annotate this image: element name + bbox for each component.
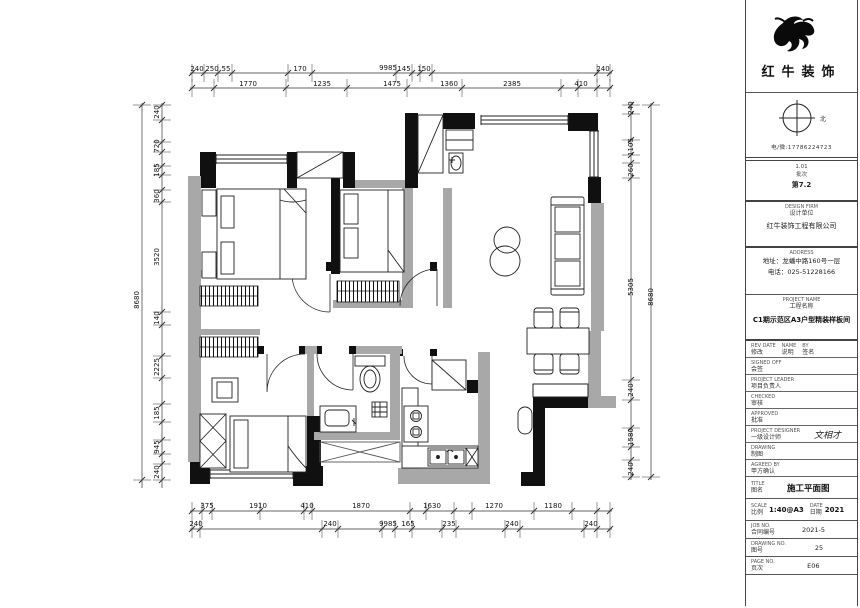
sign-label-cn: 甲方确认 (751, 468, 803, 475)
sign-label-cn: 会签 (751, 366, 803, 373)
sign-row: AGREED BY甲方确认 (746, 460, 857, 477)
drawing-number: 25 (786, 544, 852, 552)
job-label-cn: 合同编号 (751, 529, 775, 536)
bed-master (202, 189, 306, 279)
dim-label: 165 (401, 520, 414, 528)
by-label-cn: 签名 (802, 349, 814, 356)
dim-label: 150 (417, 65, 430, 73)
dim-label: 235 (442, 520, 455, 528)
dim-label: 945 (153, 440, 161, 453)
hotline: 电/微:17786224723 (746, 143, 857, 157)
dim-label: 410 (300, 502, 313, 510)
date-label-cn: 日期 (810, 509, 823, 516)
scale-value: 1:40@A3 (769, 506, 804, 514)
dim-label: 240 (189, 520, 202, 528)
contact-block: ADDRESS 地址：龙蟠中路160号一层 电话：025-51228166 (746, 248, 857, 294)
dim-label: 1580 (627, 428, 635, 446)
dim-label: 2225 (153, 358, 161, 376)
dim-label: 1770 (239, 80, 257, 88)
project-block: PROJECT NAME 工程名称 C1期示范区A3户型精装样板间 (746, 295, 857, 339)
dim-label: 1360 (440, 80, 458, 88)
entry-fixtures (446, 130, 473, 173)
dim-label: 8680 (647, 288, 655, 306)
dim-label: 240 (190, 65, 203, 73)
floor-plan: 9985 240 250 55 170 145 150 240 1770 123… (0, 0, 745, 608)
sign-label-en: PROJECT DESIGNER (751, 428, 803, 434)
dim-label: 1910 (249, 502, 267, 510)
name-label-cn: 说明 (782, 349, 797, 356)
dim-label: 410 (574, 80, 587, 88)
design-firm-block: DESIGN FIRM 设计单位 红牛装饰工程有限公司 (746, 202, 857, 246)
sign-label-cn: 审核 (751, 400, 803, 407)
title-block: 红牛装饰 北 电/微:17786224723 1.01 批次 第7.2 DESI… (745, 0, 858, 606)
shaft-boxes (297, 115, 443, 178)
dim-label: 240 (153, 465, 161, 478)
phone-line: 电话：025-51228166 (752, 267, 851, 278)
dim-label: 250 (205, 65, 218, 73)
dim-label: 9985 (379, 520, 397, 528)
bull-logo-icon (765, 13, 839, 59)
dim-label: 9985 (379, 64, 397, 72)
company-logo: 红牛装饰 (746, 0, 857, 92)
sign-label-cn: 制图 (751, 451, 803, 458)
drawing-number-row: DRAWING NO.图号 25 (746, 539, 857, 557)
bathroom-fixtures (320, 356, 400, 462)
north-label: 北 (820, 114, 826, 123)
revision-header-row: REV DATE修改 NAME说明 BY签名 (746, 341, 857, 358)
project-label-cn: 工程名称 (752, 303, 851, 310)
kitchen-fixtures (402, 360, 478, 468)
title-label-cn: 图名 (751, 487, 765, 494)
dim-label: 5305 (627, 278, 635, 296)
dim-label: 1870 (352, 502, 370, 510)
date-value: 2021 (825, 506, 844, 514)
sign-label-cn: 一级设计师 (751, 434, 803, 441)
drawing-title: 施工平面图 (765, 482, 852, 494)
dwg-label-cn: 图号 (751, 547, 786, 554)
firm-name: 红牛装饰工程有限公司 (752, 221, 851, 231)
wardrobes (200, 281, 399, 357)
north-arrow-icon (777, 98, 817, 138)
scale-date-row: SCALE比例 1:40@A3 DATE日期 2021 (746, 499, 857, 521)
bed-second (340, 190, 404, 272)
dim-label: 240 (153, 105, 161, 118)
drawing-title-row: TITLE图名 施工平面图 (746, 477, 857, 499)
sign-row: SIGNED OFF会签 (746, 358, 857, 375)
sign-row: PROJECT LEADER项目负责人 (746, 375, 857, 392)
project-name: C1期示范区A3户型精装样板间 (752, 315, 851, 325)
sign-row: CHECKED审核 (746, 392, 857, 409)
scale-label-cn: 比例 (751, 509, 767, 516)
sign-label-cn: 项目负责人 (751, 383, 803, 390)
job-number: 2021-5 (775, 526, 852, 534)
dim-label: 240 (627, 101, 635, 114)
dim-label: 1270 (485, 502, 503, 510)
firm-label-cn: 设计单位 (752, 210, 851, 217)
dim-label: 260 (627, 163, 635, 176)
designer-row: PROJECT DESIGNER一级设计师 文相才 (746, 426, 857, 443)
sign-label-cn: 批准 (751, 417, 803, 424)
dim-label: 140 (153, 311, 161, 324)
dim-label: 8680 (133, 291, 141, 309)
dim-label: 1235 (313, 80, 331, 88)
dim-label: 185 (153, 406, 161, 419)
sign-row: DRAWING制图 (746, 443, 857, 460)
dim-label: 240 (505, 520, 518, 528)
dim-label: 240 (627, 383, 635, 396)
dim-label: 360 (153, 189, 161, 202)
dim-label: 170 (293, 65, 306, 73)
page-number: E06 (775, 562, 852, 570)
meta-line: 批次 (746, 170, 857, 178)
brand-name: 红牛装饰 (761, 61, 841, 80)
bed-kids (200, 378, 306, 472)
dim-label: 240 (323, 520, 336, 528)
rev-label-cn: 修改 (751, 349, 776, 356)
job-number-row: JOB NO.合同编号 2021-5 (746, 521, 857, 539)
dim-label: 1475 (383, 80, 401, 88)
page-label-cn: 页次 (751, 565, 775, 572)
dim-label: 2385 (503, 80, 521, 88)
meta-block: 1.01 批次 第7.2 (746, 161, 857, 200)
sign-row: APPROVED批准 (746, 409, 857, 426)
dim-label: 185 (153, 163, 161, 176)
dim-label: 720 (153, 139, 161, 152)
meta-line: 第7.2 (746, 180, 857, 190)
dim-label: 240 (584, 520, 597, 528)
dim-label: 1630 (423, 502, 441, 510)
name-label-en: NAME (782, 343, 797, 349)
dim-label: 375 (200, 502, 213, 510)
dim-label: 1180 (544, 502, 562, 510)
drawing-sheet: { "title_block": { "brand": "红牛装饰", "nor… (0, 0, 860, 608)
dim-label: 240 (627, 462, 635, 475)
dim-label: 240 (596, 65, 609, 73)
page-number-row: PAGE NO.页次 E06 (746, 557, 857, 575)
address-line: 地址：龙蟠中路160号一层 (752, 256, 851, 267)
designer-signature: 文相才 (803, 428, 852, 441)
rev-label-en: REV DATE (751, 343, 776, 349)
dim-label: 145 (397, 65, 410, 73)
north-arrow: 北 (746, 93, 857, 143)
dim-label: 1105 (627, 138, 635, 156)
dim-label: 55 (222, 65, 231, 73)
dim-label: 3520 (153, 248, 161, 266)
